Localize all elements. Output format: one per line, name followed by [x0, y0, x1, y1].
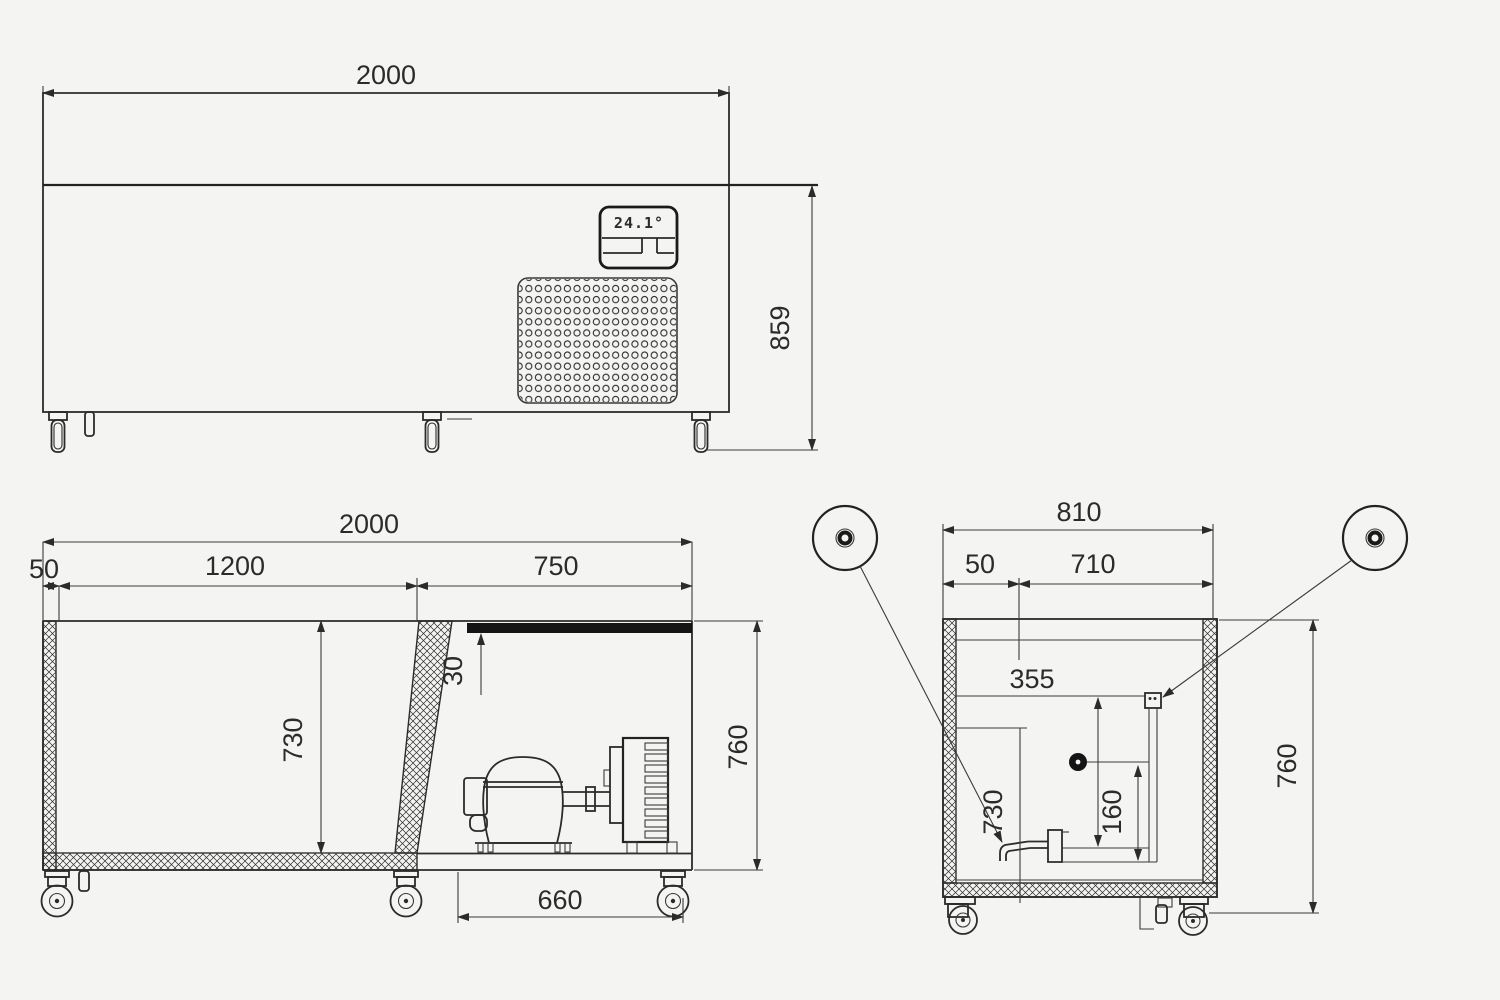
leg-stub — [79, 871, 89, 891]
section-casters — [42, 871, 689, 917]
caster — [49, 412, 67, 452]
insulation-left-wall — [43, 621, 56, 870]
cross-casters — [945, 897, 1208, 935]
dim-body-height: 760 — [723, 724, 753, 769]
dim-front-width: 2000 — [356, 60, 416, 90]
caster — [423, 412, 472, 452]
caster — [658, 871, 689, 917]
grommet-icon — [1370, 533, 1381, 544]
dim-cross-wall-thickness: 50 — [965, 549, 995, 579]
dim-section-overall-width: 2000 — [339, 509, 399, 539]
dim-cross-tank-depth: 730 — [978, 789, 1008, 834]
caster — [391, 871, 422, 917]
dim-tank-width: 1200 — [205, 551, 265, 581]
thermostat-sensor — [1145, 693, 1161, 862]
grommet-icon — [840, 533, 851, 544]
insulation-left-wall — [943, 619, 956, 883]
dim-cross-overall-width: 810 — [1056, 497, 1101, 527]
longitudinal-section-view: 2000 50 1200 750 730 30 760 660 — [29, 509, 763, 923]
detail-balloon-right — [1163, 506, 1407, 697]
caster — [692, 412, 710, 452]
caster — [1179, 897, 1208, 935]
caster — [42, 871, 73, 917]
technical-drawing-canvas: 24.1° — [0, 0, 1500, 1000]
dim-machine-base: 660 — [537, 885, 582, 915]
drain-outlet-leader — [1140, 898, 1154, 929]
temperature-display-panel: 24.1° — [600, 207, 677, 268]
dim-machine-width: 750 — [533, 551, 578, 581]
drain-outlet-stub — [1156, 905, 1167, 923]
insulation-divider-wall — [395, 621, 452, 853]
leg-stub — [85, 412, 94, 436]
dim-cross-body-height: 760 — [1272, 743, 1302, 788]
dim-front-height: 859 — [765, 305, 795, 350]
insulation-bottom-wall — [943, 883, 1217, 897]
condenser-unit — [604, 738, 677, 853]
caster — [945, 897, 977, 934]
dim-worktop-thickness: 30 — [438, 656, 468, 686]
compressor — [464, 757, 610, 852]
dim-tank-depth: 730 — [278, 717, 308, 762]
worktop-black-band — [467, 623, 692, 633]
drain-fitting — [1000, 830, 1157, 862]
front-casters — [49, 412, 710, 452]
condenser-fins — [645, 743, 668, 838]
dim-cross-inner-width: 710 — [1070, 549, 1115, 579]
insulation-bottom-wall — [43, 853, 417, 870]
front-view: 24.1° — [43, 60, 818, 452]
dim-mid-depth: 355 — [1009, 664, 1054, 694]
vent-grille — [518, 278, 677, 403]
cross-section-view: 810 50 710 355 730 160 760 — [813, 497, 1407, 935]
front-dimensions: 2000 859 — [43, 60, 818, 450]
vent-grille-holes — [519, 279, 676, 402]
dim-drain-height: 160 — [1097, 789, 1127, 834]
insulation-right-wall — [1203, 619, 1217, 883]
temperature-readout: 24.1° — [614, 214, 664, 232]
dim-wall-thickness: 50 — [29, 554, 59, 584]
